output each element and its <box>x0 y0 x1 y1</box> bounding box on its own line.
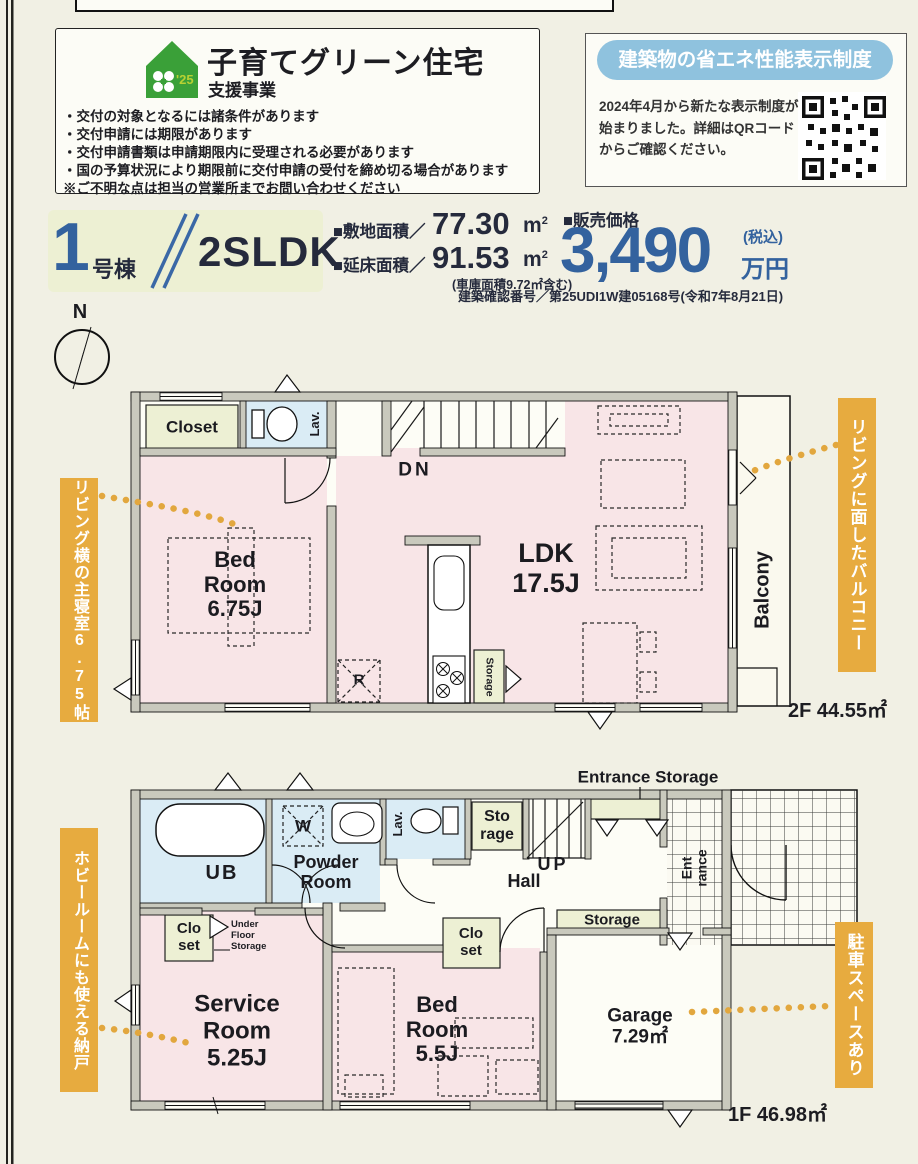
subsidy-note-4: ・国の予算状況により期限前に交付申請の受付を締め切る場合があります <box>63 159 508 179</box>
floor-area-value: 91.53 <box>432 240 510 276</box>
room-label-lav-2f: Lav. <box>308 411 322 436</box>
energy-header: 建築物の省エネ性能表示制度 <box>597 40 893 80</box>
closet-left-label: Clo set <box>177 921 201 955</box>
site-area-unit-sup: 2 <box>542 215 548 227</box>
subsidy-note-5: ※ご不明な点は担当の営業所までお問い合わせください <box>63 177 401 197</box>
washer-label: W <box>295 816 311 835</box>
room-label-service: Service Room 5.25J <box>194 992 279 1073</box>
room-label-lav-1f: Lav. <box>391 811 405 836</box>
subsidy-note-1: ・交付の対象となるには諸条件があります <box>63 105 319 125</box>
site-area-value: 77.30 <box>432 206 510 242</box>
price-unit: 万円 <box>741 249 789 284</box>
site-area-unit-m: m <box>523 214 542 237</box>
floor-area-2f: 2F 44.55㎡ <box>788 694 887 723</box>
storage-label-2f: Storage <box>483 657 494 696</box>
subsidy-icon-year: '25 <box>176 72 194 87</box>
room-label-closet-2f: Closet <box>166 417 218 436</box>
room-label-bedroom-2f: Bed Room 6.75J <box>204 548 266 622</box>
room-label-bedroom-1f: Bed Room 5.5J <box>406 993 468 1067</box>
callout-storage-1f: ホビールームにも使える納戸 <box>60 828 98 1092</box>
room-label-powder: Powder Room <box>293 852 358 892</box>
qr-code-icon <box>798 92 886 180</box>
plan-type: 2SLDK <box>198 228 341 276</box>
price-value: 3,490 <box>560 213 710 287</box>
callout-parking-1f: 駐車スペースあり <box>835 922 873 1088</box>
stairs-dn-label: DN <box>398 459 431 480</box>
hall-label: Hall <box>507 871 540 891</box>
unit-label: 号棟 <box>92 252 136 284</box>
building-confirmation: 建築確認番号／第25UDI1W建05168号(令和7年8月21日) <box>458 286 783 305</box>
room-label-garage: Garage 7.29㎡ <box>607 1006 672 1049</box>
compass-north-label: N <box>73 301 87 323</box>
compass-icon <box>55 327 109 389</box>
unit-slash <box>152 214 198 288</box>
entrance-storage-label: Entrance Storage <box>578 767 719 786</box>
floor-area-unit-sup: 2 <box>542 249 548 261</box>
callout-balcony-2f: リビングに面したバルコニー <box>838 398 876 672</box>
page-edge-lines <box>6 0 14 1164</box>
site-area-unit: m2 <box>523 214 548 238</box>
underfloor-storage-label: Under Floor Storage <box>231 920 266 953</box>
subsidy-note-3: ・交付申請書類は申請期限内に受理される必要があります <box>63 141 414 161</box>
site-area-label: ■敷地面積／ <box>333 218 425 242</box>
price-tax: (税込) <box>743 226 783 247</box>
fridge-label: R <box>354 673 365 690</box>
entrance-label: Ent rance <box>679 849 708 886</box>
green-house-icon <box>146 41 198 98</box>
room-label-ldk: LDK 17.5J <box>512 538 580 598</box>
subsidy-subtitle: 支援事業 <box>208 76 276 101</box>
floor-area-1f: 1F 46.98㎡ <box>728 1098 827 1127</box>
flyer-page: '25 子育てグリーン住宅 支援事業 ・交付の対象となるには諸条件があります ・… <box>0 0 918 1164</box>
closet-mid-label: Clo set <box>459 926 483 960</box>
callout-bedroom-2f: リビング横の主寝室6.75帖 <box>60 478 98 722</box>
room-label-storage-1f: Sto rage <box>480 808 514 844</box>
storage-strip-label: Storage <box>584 913 640 930</box>
floor-area-label: ■延床面積／ <box>333 252 425 276</box>
unit-number: 1 <box>52 208 90 286</box>
energy-body: 2024年4月から新たな表示制度が 始まりました。詳細はQRコード からご確認く… <box>599 96 804 161</box>
floor-area-unit: m2 <box>523 248 548 272</box>
balcony-label: Balcony <box>753 551 774 629</box>
subsidy-note-2: ・交付申請には期限があります <box>63 123 252 143</box>
room-label-ub: UB <box>206 862 239 884</box>
floor-area-unit-m: m <box>523 248 542 271</box>
stairs-up-label: UP <box>537 854 568 874</box>
